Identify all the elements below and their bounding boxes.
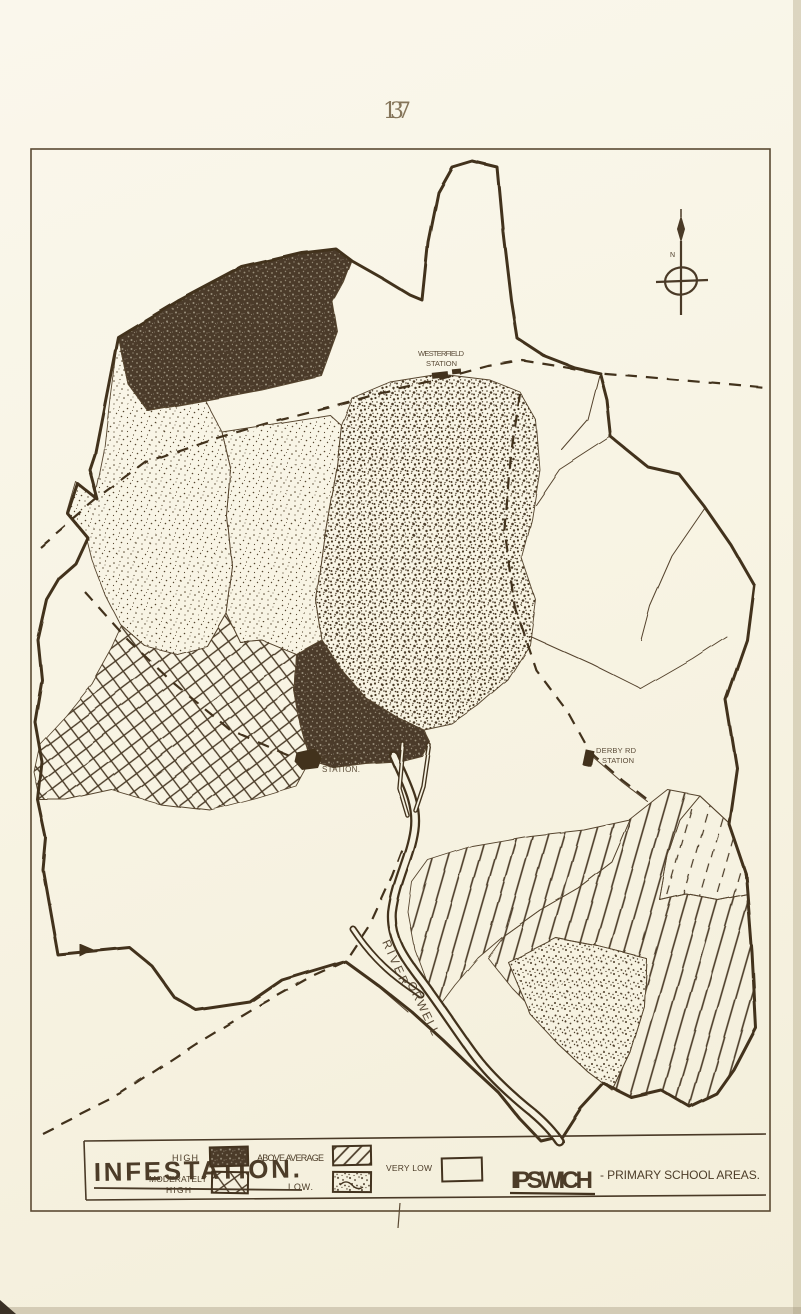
- legend-area-subtitle: - PRIMARY SCHOOL AREAS.: [600, 1168, 760, 1182]
- legend-label-above-average: ABOVE AVERAGE: [257, 1153, 324, 1163]
- ipswich-station-label-line2: STATION.: [322, 765, 360, 774]
- legend-label-moderately-high-line2: HIGH: [166, 1185, 191, 1195]
- region-high-northwest: [118, 249, 352, 411]
- legend-swatch-low-icon: [333, 1172, 371, 1192]
- compass-north-icon: N: [656, 209, 708, 315]
- boundary-arrow-mark: [80, 944, 94, 957]
- scan-edge-shadow-right: [793, 0, 801, 1314]
- ipswich-infestation-map: 137: [0, 0, 801, 1314]
- ipswich-station-label-line1: IPSWICH: [320, 754, 358, 763]
- legend-area-title-underline: [510, 1193, 595, 1194]
- derby-road-station-label-line2: STATION: [602, 756, 634, 765]
- legend-swatch-very-low-icon: [442, 1157, 483, 1181]
- westerfield-station-label-line1: WESTERFIELD: [418, 349, 465, 358]
- legend-area-title: IPSWICH: [511, 1167, 593, 1194]
- border-registration-tick: [398, 1203, 400, 1228]
- westerfield-station-label-line2: STATION: [426, 359, 457, 368]
- page-number: 137: [383, 99, 411, 124]
- legend-swatch-above-average-icon: [333, 1146, 371, 1166]
- legend-title-underline: [94, 1188, 302, 1190]
- derby-road-station-marker: [582, 749, 594, 767]
- legend-swatch-moderately-high-icon: [212, 1172, 248, 1194]
- scanned-map-page: 137: [0, 0, 801, 1314]
- legend-swatch-high-icon: [210, 1147, 248, 1167]
- region-low-stipple-central: [316, 374, 540, 730]
- scan-edge-shadow-bottom: [0, 1307, 801, 1314]
- legend: INFESTATION. HIGH MODERATELY HIGH ABOVE …: [84, 1134, 766, 1200]
- railway-southwest-curve: [42, 844, 404, 1133]
- legend-label-very-low: VERY LOW: [386, 1163, 432, 1173]
- derby-road-station-label-line1: DERBY RD: [596, 746, 637, 755]
- legend-label-moderately-high-line1: MODERATELY: [149, 1174, 207, 1184]
- legend-label-low: LOW.: [288, 1182, 313, 1192]
- legend-label-high: HIGH: [172, 1153, 198, 1163]
- compass-n-label: N: [670, 252, 675, 259]
